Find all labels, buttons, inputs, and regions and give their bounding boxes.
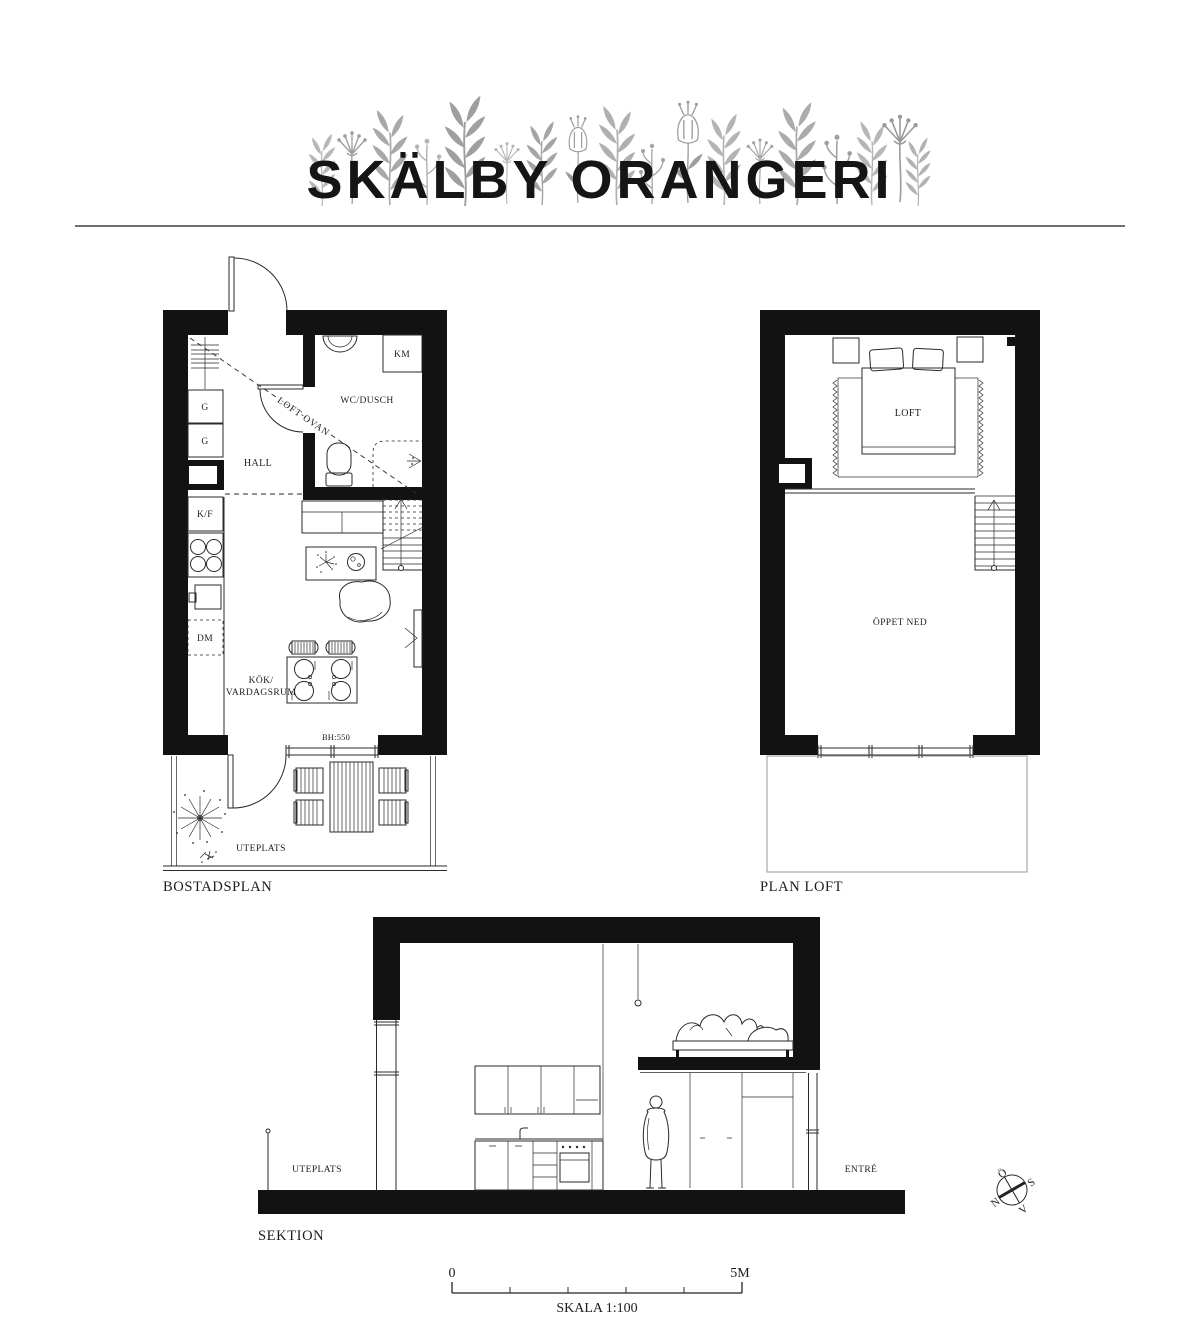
patio-post [266,1129,270,1190]
bh550-label: BH:550 [322,732,350,742]
loft-label: LOFT [895,408,922,419]
toilet [326,443,352,486]
kitchen-elevation [475,1066,603,1190]
bostadsplan-caption: BOSTADSPLAN [163,879,272,895]
entre-door-glass [806,1073,819,1190]
armchair [340,581,391,622]
loft-ovan-label: LOFT OVAN [275,396,331,439]
oppet-ned-label: ÖPPET NED [873,616,927,628]
loft-bed-section [673,1015,793,1057]
side-window [414,610,422,667]
stairs-main [381,498,423,571]
overhead-stair-hatch [191,337,219,389]
page-title: SKÄLBY ORANGERI [306,150,893,210]
sektion-entre-label: ENTRÉ [845,1163,878,1175]
washbasin [323,336,357,352]
km-label: KM [394,350,410,360]
kok-label-line2: VARDAGSRUM [226,688,296,698]
kok-label-line1: KÖK/ [249,674,274,686]
dining-set [287,641,357,703]
dining-chair [326,641,355,654]
sektion-drawing: UTEPLATS ENTRÉ SEKTION [258,917,905,1244]
nightstand-left [833,338,859,363]
wc-dusch-label: WC/DUSCH [340,396,393,406]
patio: UTEPLATS [163,756,447,871]
dm-label: DM [197,634,213,644]
patio-outline [767,756,1027,872]
compass-west: V [1017,1203,1031,1217]
architecture-sheet: SKÄLBY ORANGERI [0,0,1200,1320]
outdoor-chairs [294,768,408,825]
scale-end-label: 5M [730,1266,750,1281]
bed [833,337,983,454]
sektion-caption: SEKTION [258,1228,324,1244]
loft-edge [785,489,975,493]
flower-sprig [905,137,931,206]
closet-elevation [690,1073,793,1188]
sofa [302,501,383,533]
plant [316,551,337,573]
pillow [912,348,943,371]
dining-table [287,657,357,703]
shower [373,441,422,487]
drawing-canvas: SKÄLBY ORANGERI [0,0,1200,1320]
dining-chair [289,641,318,654]
sektion-uteplats-label: UTEPLATS [292,1165,342,1175]
kitchen-run [188,497,224,735]
entrance-door [229,257,287,311]
g-upper-label: G [201,403,208,413]
bostadsplan-drawing: KM WC/DUSCH LOFT OVAN HALL G G [163,257,447,895]
plan-loft-caption: PLAN LOFT [760,879,843,895]
scale-caption: SKALA 1:100 [556,1301,637,1316]
compass-south: S [1026,1176,1038,1189]
scale-start-label: 0 [449,1266,456,1281]
glass-wall-left [374,1020,399,1190]
hall-label: HALL [244,458,272,469]
compass-rose: Ö S V N [989,1167,1038,1217]
pendant-lamp [635,944,641,1006]
plan-loft-drawing: LOFT ÖPPET NED PLAN LOFT [760,310,1040,895]
outdoor-table [330,762,373,832]
compass-east: Ö [996,1167,1010,1181]
south-glazing [286,745,378,758]
kf-label: K/F [197,510,213,520]
stairs-loft [975,496,1015,571]
patio-door [228,755,286,808]
tree [173,790,226,863]
uteplats-label: UTEPLATS [236,844,286,854]
person-figure [643,1096,668,1188]
nightstand-right [957,337,983,362]
g-lower-label: G [201,437,208,447]
scale-bar: 0 5M SKALA 1:100 [449,1266,751,1316]
coffee-table [306,547,376,580]
